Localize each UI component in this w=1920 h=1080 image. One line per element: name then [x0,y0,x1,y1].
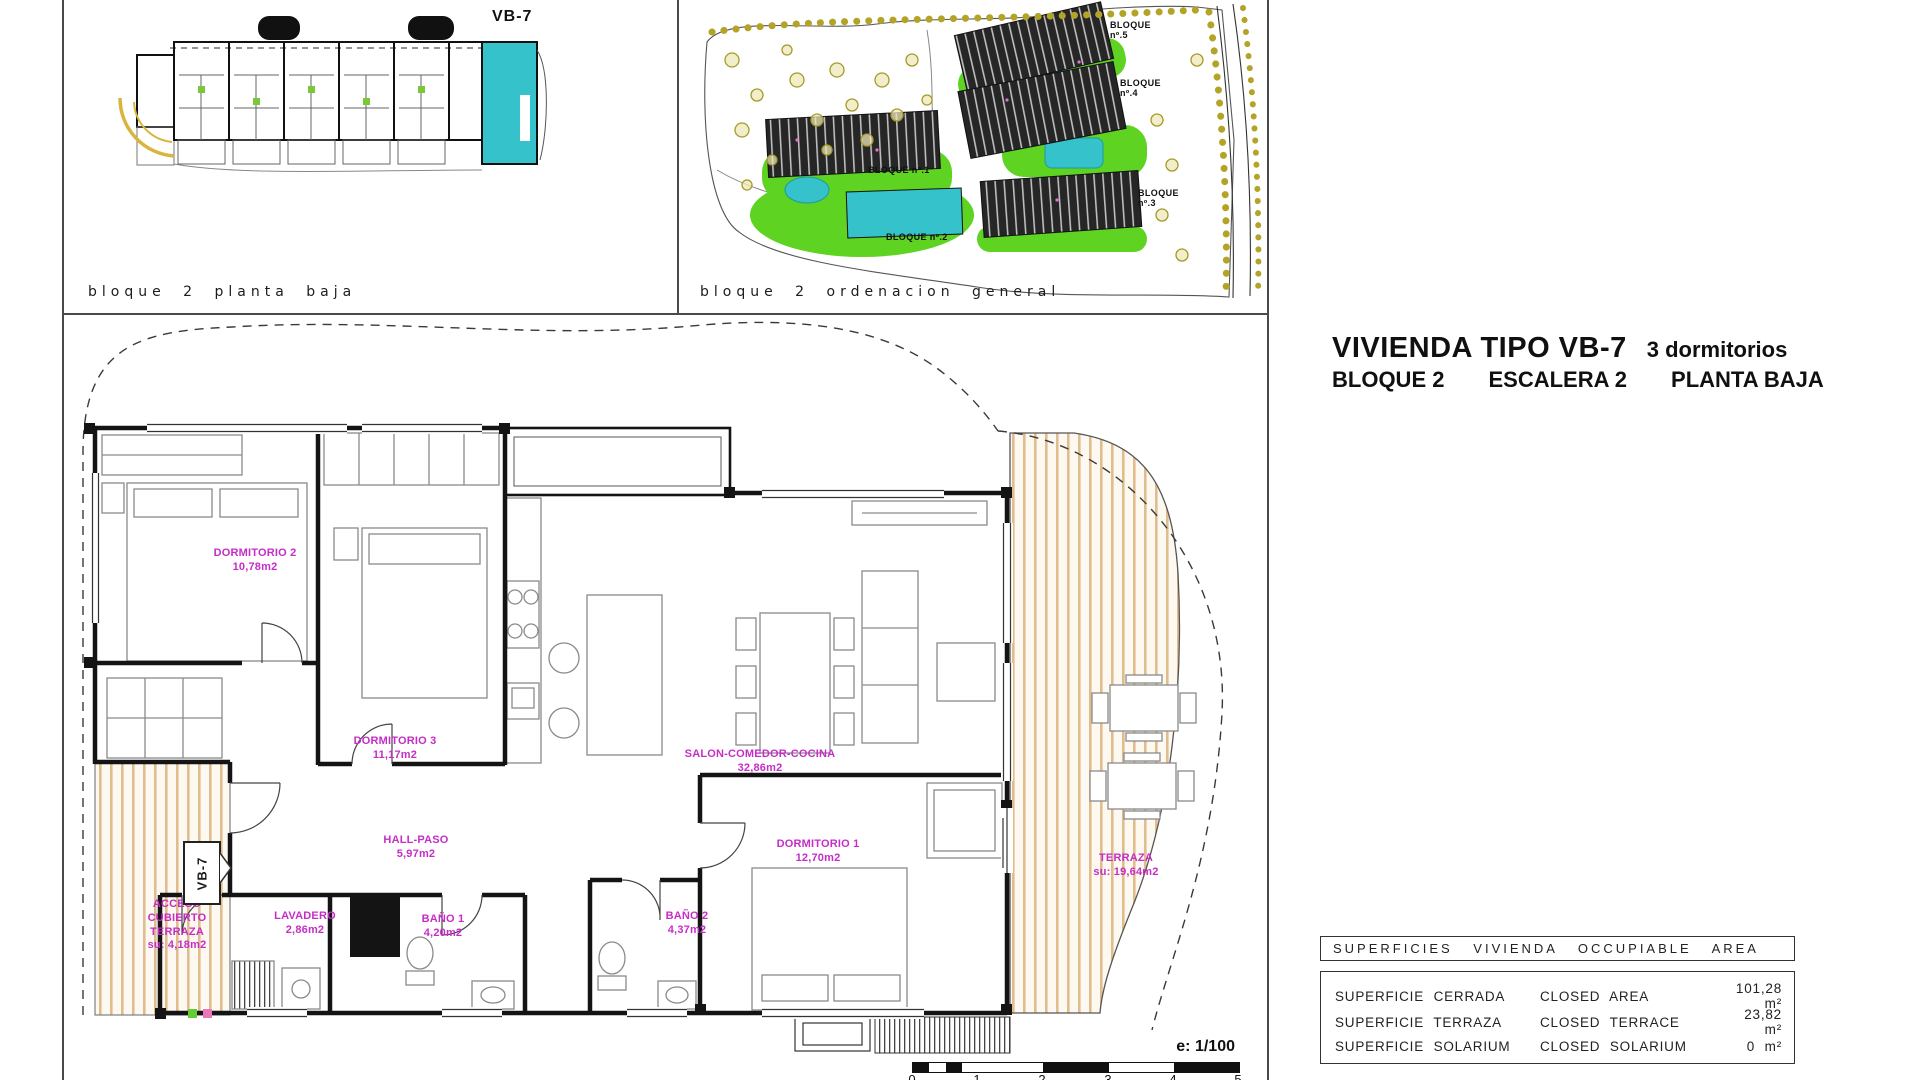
scale-ticks: 0 1 2 3 4 5 [912,1072,1238,1080]
block-name: BLOQUE 2 [1332,367,1444,393]
garden-hatch-strip [875,1017,1010,1053]
site-label-bloque2: BLOQUE nº.2 [886,232,948,242]
floor-plan-drawing [62,313,1267,1080]
table-row: SUPERFICIE CERRADA CLOSED AREA 101,28 m² [1335,981,1782,1007]
room-label-acceso: ACCESO CUBIERTO TERRAZAsu: 4,18m2 [135,898,219,953]
bedrooms-count: 3 dormitorios [1647,337,1788,363]
site-label-bloque1: BLOQUE nº.1 [868,165,930,175]
floor-name: PLANTA BAJA [1671,367,1824,393]
room-label-salon: SALON-COMEDOR-COCINA32,86m2 [685,748,836,776]
entry-marker-pink [203,1009,212,1018]
entry-marker-green [188,1009,197,1018]
site-label-bloque5: BLOQUE nº.5 [1110,20,1151,41]
unit-tag-arrow-icon [219,852,233,884]
room-label-bano2: BAÑO 24,37m2 [666,910,709,938]
dwelling-type-title: VIVIENDA TIPO VB-7 [1332,332,1627,365]
areas-table: SUPERFICIE CERRADA CLOSED AREA 101,28 m²… [1320,971,1795,1064]
frame-right [1267,0,1269,1080]
room-label-bano1: BAÑO 14,20m2 [422,913,465,941]
block-plan-unit-label: VB-7 [492,8,532,26]
highlighted-bloque2 [846,188,963,238]
block-plan-drawing [62,0,677,313]
block-plan-units [120,16,546,172]
table-row: SUPERFICIE TERRAZA CLOSED TERRACE 23,82 … [1335,1007,1782,1033]
room-label-dormitorio2: DORMITORIO 210,78m2 [214,547,297,575]
room-label-dormitorio1: DORMITORIO 112,70m2 [777,838,860,866]
scale-label: e: 1/100 [1090,1038,1235,1056]
site-plan-drawing [677,0,1267,313]
room-label-hall: HALL-PASO5,97m2 [383,834,448,862]
unit-tag: VB-7 [183,841,221,905]
site-plan-caption: bloque 2 ordenacion general [700,284,1060,300]
site-label-bloque4: BLOQUE nº.4 [1120,78,1161,99]
exterior-unit [795,1017,870,1051]
block-plan-caption: bloque 2 planta baja [88,284,356,300]
table-row: SUPERFICIE SOLARIUM CLOSED SOLARIUM 0 m² [1335,1033,1782,1059]
drawing-sheet: VB-7 bloque 2 planta baja [0,0,1920,1080]
stair-name: ESCALERA 2 [1488,367,1627,393]
shaft-wall [350,895,400,957]
title-block: VIVIENDA TIPO VB-7 3 dormitorios BLOQUE … [1332,332,1868,393]
bay-window [505,428,730,495]
site-label-bloque3: BLOQUE nº.3 [1138,188,1179,209]
areas-table-header: SUPERFICIES VIVIENDA OCCUPIABLE AREA [1320,936,1795,961]
room-label-terraza: TERRAZAsu: 19,64m2 [1093,852,1158,880]
room-label-lavadero: LAVADERO2,86m2 [274,910,336,938]
room-label-dormitorio3: DORMITORIO 311,17m2 [354,735,437,763]
